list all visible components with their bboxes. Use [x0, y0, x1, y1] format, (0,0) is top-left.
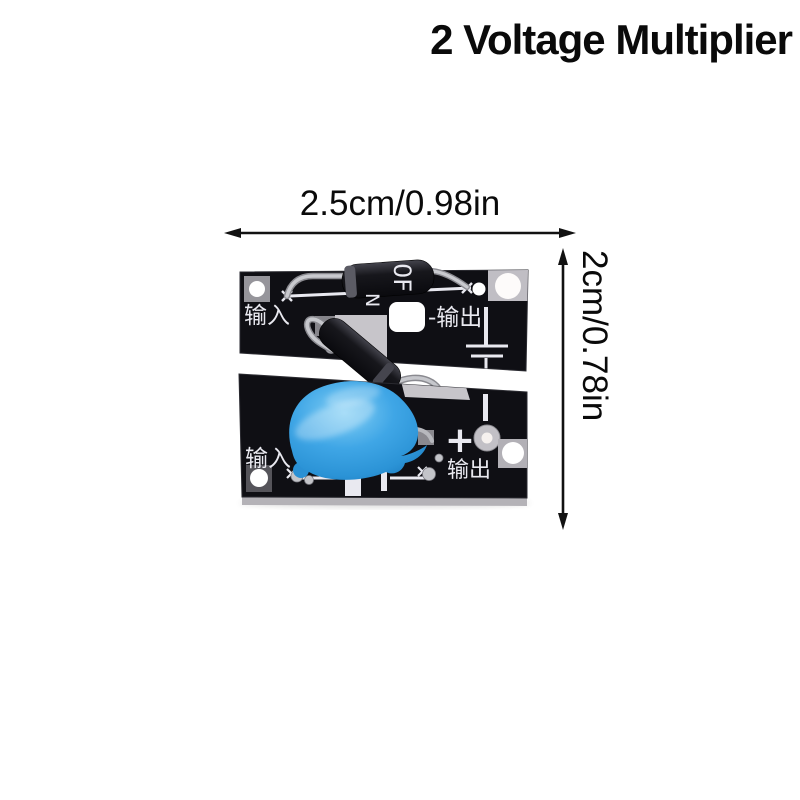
- minus-symbol: [483, 394, 488, 421]
- board-notch: [389, 302, 425, 332]
- diode-top: [341, 259, 435, 299]
- svg-text:0F: 0F: [388, 263, 416, 292]
- height-dimension-arrow: [556, 248, 570, 530]
- arrow-head-top-icon: [558, 248, 568, 265]
- pad-hole: [482, 433, 493, 444]
- height-dimension-label: 2cm/0.78in: [574, 250, 614, 528]
- diode-marking: N: [361, 293, 383, 307]
- top-board-input-label: 输入: [244, 303, 290, 329]
- silkscreen-line: [484, 307, 488, 345]
- page-title: 2 Voltage Multiplier: [430, 16, 792, 64]
- arrow-head-bottom-icon: [558, 513, 568, 530]
- arrow-head-left-icon: [224, 228, 241, 238]
- arrow-head-right-icon: [559, 228, 576, 238]
- mounting-hole: [502, 442, 524, 464]
- width-dimension-label: 2.5cm/0.98in: [226, 184, 574, 224]
- diode-marking: 0F: [388, 263, 416, 292]
- mounting-hole: [249, 281, 265, 297]
- bottom-board-input-label: 输入: [245, 446, 291, 472]
- bottom-board-output-label: 输出: [447, 458, 491, 483]
- product-image: 2 Voltage Multiplier 2.5cm/0.98in 2cm/0.…: [0, 0, 800, 800]
- svg-text:N: N: [361, 293, 383, 307]
- mounting-hole: [473, 283, 486, 296]
- mounting-hole: [495, 273, 521, 299]
- pcb-photo: 输入 -输出 0F N: [235, 255, 535, 510]
- board-side-edge: [242, 497, 527, 506]
- plus-symbol: +: [445, 420, 475, 461]
- top-board-output-label: -输出: [428, 305, 482, 331]
- width-dimension-arrow: [224, 226, 576, 240]
